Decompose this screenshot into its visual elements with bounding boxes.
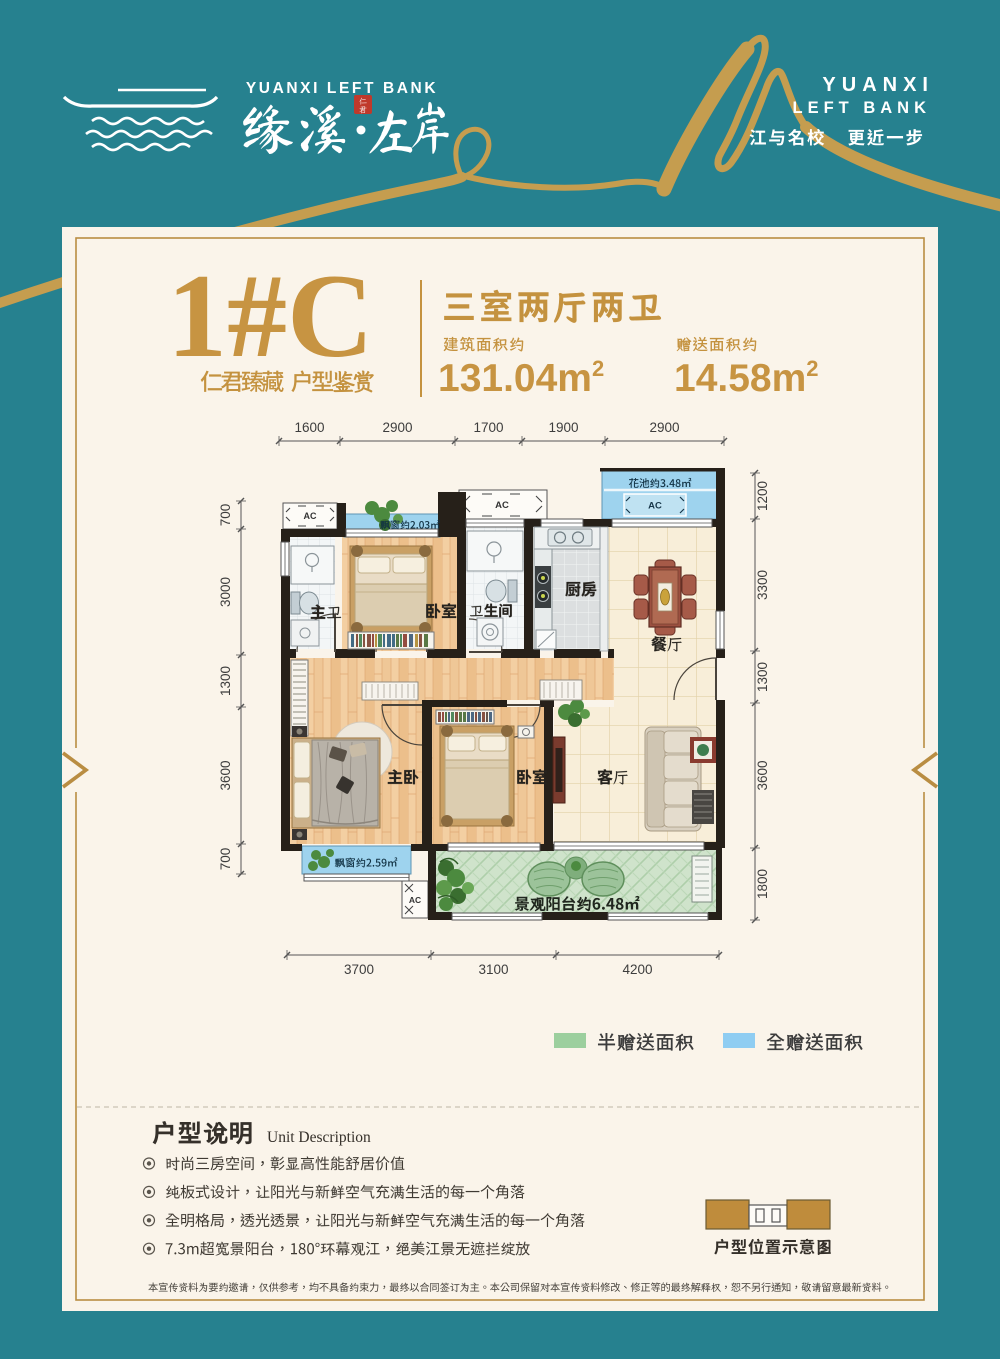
svg-text:1#C: 1#C xyxy=(167,249,374,382)
svg-text:AC: AC xyxy=(495,500,509,511)
svg-text:LEFT BANK: LEFT BANK xyxy=(793,99,932,117)
svg-text:Unit Description: Unit Description xyxy=(267,1129,371,1146)
svg-text:131.04m2: 131.04m2 xyxy=(438,356,604,400)
svg-text:2900: 2900 xyxy=(382,420,412,435)
svg-text:1900: 1900 xyxy=(548,420,578,435)
svg-text:YUANXI: YUANXI xyxy=(822,74,934,96)
svg-text:1300: 1300 xyxy=(755,662,770,692)
svg-text:3700: 3700 xyxy=(344,962,374,977)
svg-text:AC: AC xyxy=(304,511,317,521)
svg-text:3000: 3000 xyxy=(218,577,233,607)
svg-text:4200: 4200 xyxy=(622,962,652,977)
svg-text:3300: 3300 xyxy=(755,570,770,600)
svg-text:AC: AC xyxy=(648,501,662,512)
svg-text:3600: 3600 xyxy=(218,760,233,790)
svg-text:1700: 1700 xyxy=(473,420,503,435)
svg-text:3100: 3100 xyxy=(478,962,508,977)
svg-text:1200: 1200 xyxy=(755,481,770,511)
svg-text:2900: 2900 xyxy=(649,420,679,435)
svg-text:1600: 1600 xyxy=(294,420,324,435)
svg-text:14.58m2: 14.58m2 xyxy=(674,356,819,400)
svg-text:1800: 1800 xyxy=(755,869,770,899)
svg-text:AC: AC xyxy=(409,895,421,905)
svg-text:YUANXI LEFT BANK: YUANXI LEFT BANK xyxy=(246,80,438,97)
svg-text:700: 700 xyxy=(218,504,233,527)
svg-text:700: 700 xyxy=(218,848,233,871)
svg-text:3600: 3600 xyxy=(755,760,770,790)
svg-text:1300: 1300 xyxy=(218,666,233,696)
